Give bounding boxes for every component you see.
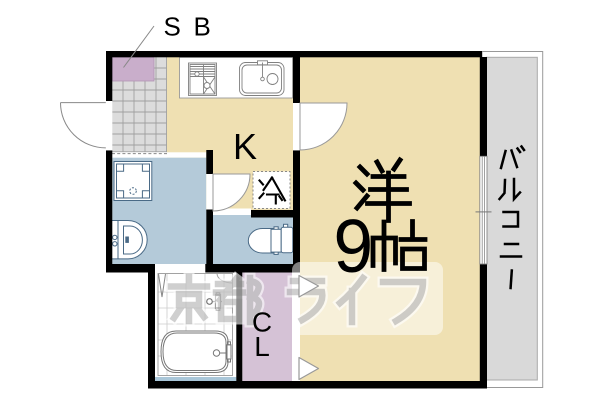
svg-text:L: L	[254, 331, 270, 362]
svg-text:B: B	[194, 12, 211, 42]
svg-text:K: K	[233, 126, 257, 167]
svg-text:9: 9	[333, 204, 373, 288]
svg-text:S: S	[164, 12, 181, 42]
